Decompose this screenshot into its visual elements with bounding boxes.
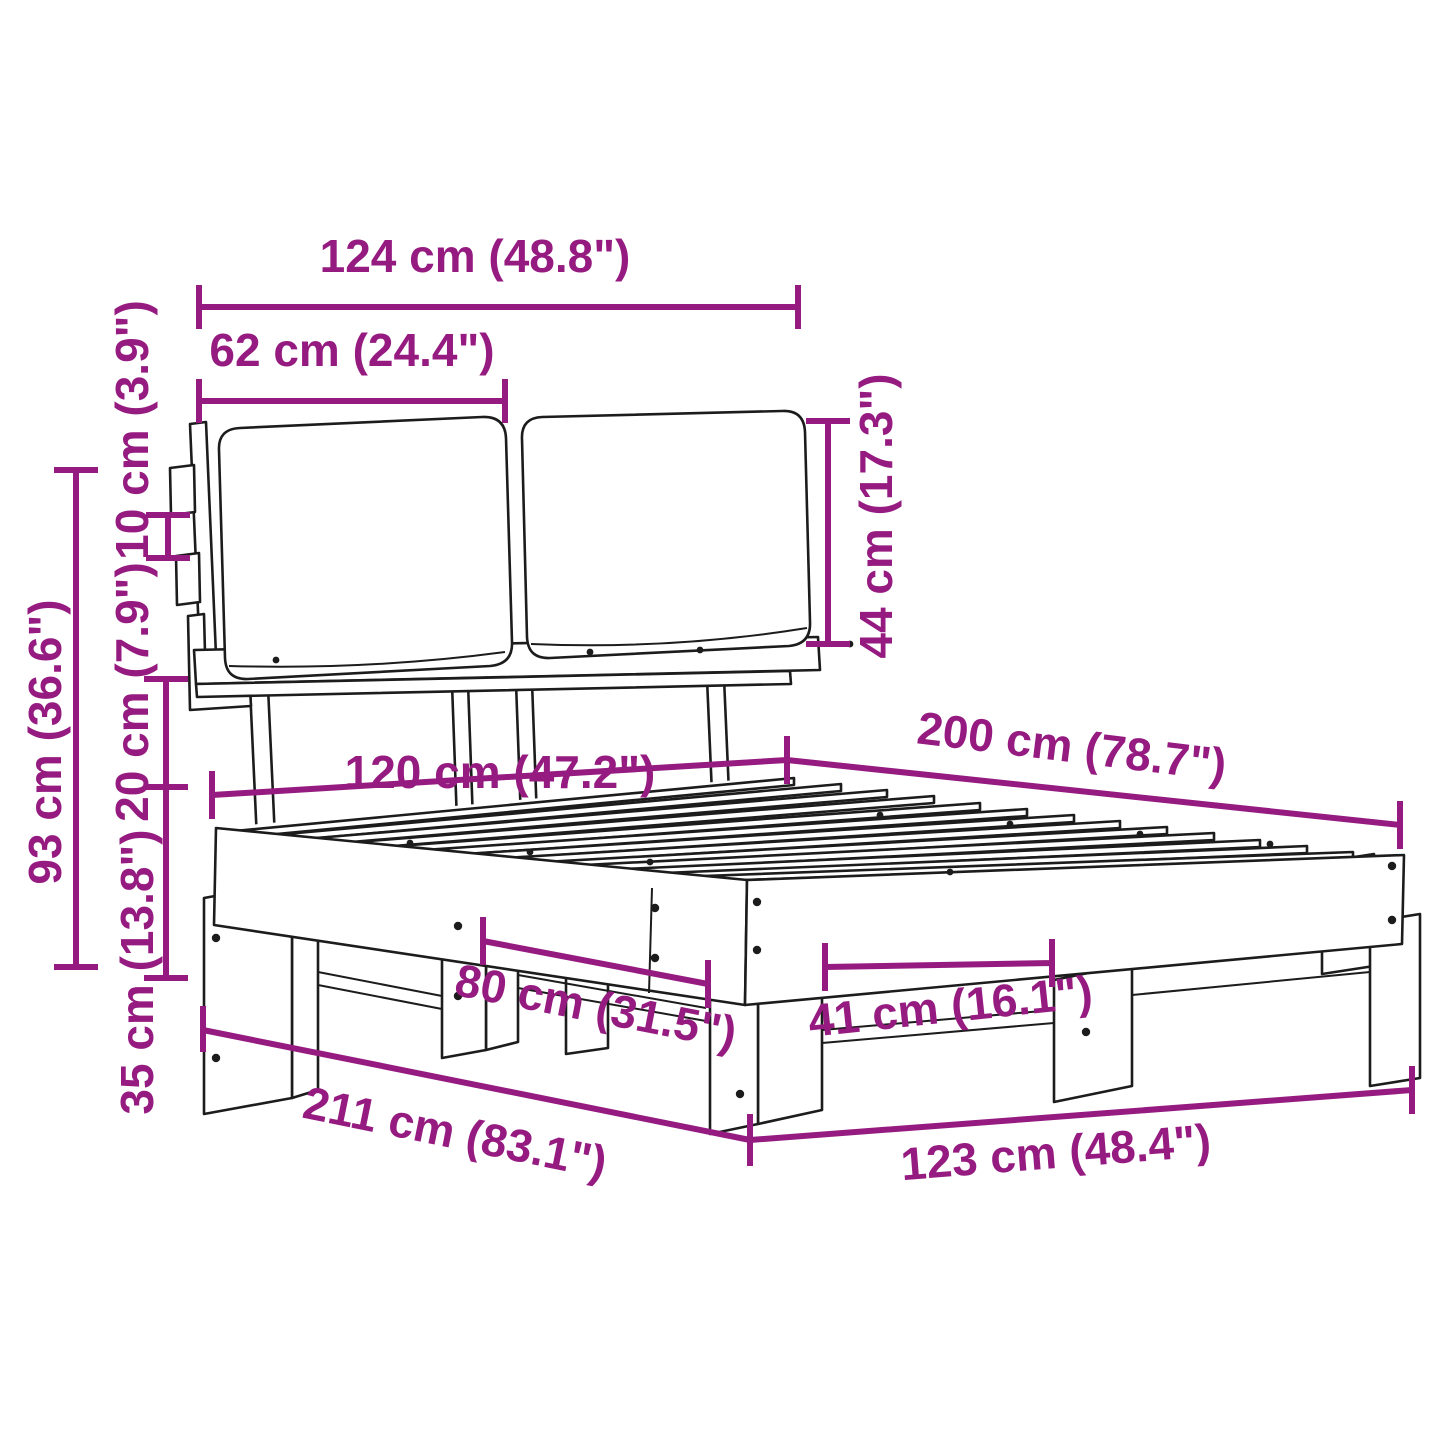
dim-62-label: 62 cm (24.4") (209, 324, 494, 376)
diagram-canvas: 124 cm (48.8") 62 cm (24.4") 10 cm (3.9"… (0, 0, 1445, 1445)
dim-62-line (199, 379, 505, 423)
dim-10-label: 10 cm (3.9") (106, 300, 158, 560)
dim-35: 35 cm (13.8") (111, 787, 188, 1115)
dim-124: 124 cm (48.8") (199, 230, 798, 329)
hanger-tab-top (170, 465, 195, 515)
cushion-left (219, 417, 512, 679)
stretcher-bar (318, 972, 442, 1009)
dim-44-label: 44 cm (17.3") (850, 373, 902, 658)
dim-20-label: 20 cm (7.9") (106, 562, 158, 822)
dim-10: 10 cm (3.9") (106, 300, 190, 560)
dim-211-label: 211 cm (83.1") (299, 1076, 611, 1188)
dim-44: 44 cm (17.3") (806, 373, 902, 658)
dim-120-label: 120 cm (47.2") (345, 746, 656, 798)
dim-44-line (806, 421, 850, 644)
headboard (170, 411, 820, 710)
dim-93: 93 cm (36.6") (19, 470, 98, 967)
cushion-right (522, 411, 810, 658)
dim-35-label: 35 cm (13.8") (111, 829, 163, 1114)
dim-93-label: 93 cm (36.6") (19, 599, 71, 884)
dim-124-line (199, 285, 798, 329)
stretcher-bar (1132, 972, 1370, 995)
bed-dimension-diagram: 124 cm (48.8") 62 cm (24.4") 10 cm (3.9"… (0, 0, 1445, 1445)
dim-124-label: 124 cm (48.8") (320, 230, 631, 282)
dim-62: 62 cm (24.4") (199, 324, 505, 423)
